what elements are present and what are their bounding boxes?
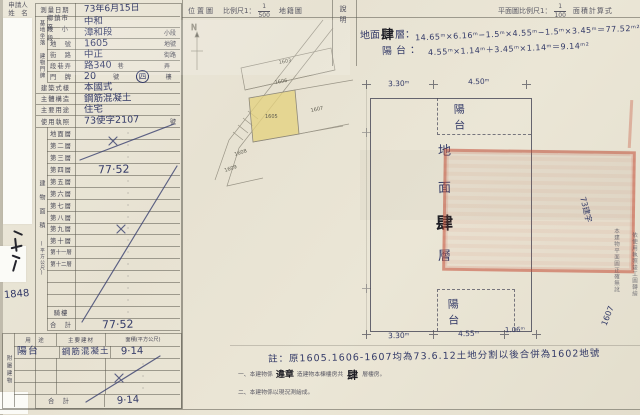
divider — [332, 0, 333, 66]
floor-area-value: 77·52 — [98, 163, 130, 175]
dimension-label: 3.30ᵐ — [388, 80, 410, 88]
floor-plan-header: 平面圖比例尺1： 1 100 面積計算式 — [498, 4, 613, 19]
balcony-bottom: 陽 台 — [437, 289, 515, 331]
dimension-label: 3.30ᵐ — [388, 332, 410, 340]
dimension-tick — [429, 80, 438, 89]
margin-note-column: 依使用執照竣工圖轉繪 — [630, 232, 638, 402]
receipt-number: 1848 — [4, 289, 30, 301]
divider — [230, 345, 640, 346]
dimension-label: 4.55ᵐ — [458, 330, 480, 338]
divider — [182, 0, 183, 409]
parcel-number: 1608 — [234, 148, 248, 158]
dimension-tick — [522, 80, 531, 89]
dimension-tick — [362, 284, 371, 293]
notes-column-label: 說明 — [338, 5, 348, 27]
dimension-tick — [429, 330, 438, 339]
applicant-label-line2: 姓 名 — [2, 10, 34, 18]
dimension-label: 4.50ᵐ — [468, 78, 490, 86]
area-formula-2: 陽台： 4.55ᵐ×1.14ᵐ＋3.45ᵐ×1.14ᵐ＝9.14ᵐ² — [382, 43, 590, 57]
balcony-label: 陽 台 — [437, 293, 514, 328]
divider — [356, 0, 357, 66]
printed-note-2: 二、本建物係以現況測繪成。 — [238, 390, 313, 397]
location-map-title: 位置圖 — [188, 7, 215, 15]
seal-edge-mark — [628, 100, 634, 148]
dimension-tick — [362, 128, 371, 137]
dimension-tick — [362, 80, 371, 89]
balcony-top: 陽 台 — [437, 98, 531, 135]
survey-date-value: 73年6月15日 — [84, 4, 140, 14]
annex-total: 9·14 — [117, 395, 140, 407]
parcel-number: 1605 — [265, 114, 278, 120]
floor-area-total: 77·52 — [102, 318, 134, 330]
parcel-number: 1609 — [224, 164, 238, 174]
dimension-tick — [362, 330, 371, 339]
floor-total-row: 合 計 77·52 — [47, 318, 180, 331]
balcony-label: 陽 台 — [437, 98, 531, 133]
annex-use: 陽台 — [17, 347, 39, 358]
parcel-number: 1607 — [310, 105, 324, 114]
parcel-number: 1606 — [274, 78, 288, 86]
plan-scale-fraction: 1 100 — [554, 4, 565, 19]
annex-total-row: 合 計 9·14 — [14, 394, 180, 407]
subject-parcel-highlight — [249, 90, 299, 142]
annex-area: 9·14 — [121, 347, 144, 358]
parcel-number: 1603 — [278, 58, 292, 66]
dimension-extension-line — [366, 84, 367, 336]
annex-header-row: 用 途 主要建材 面積(平方公尺) — [14, 333, 180, 347]
annex-material: 鋼筋混凝土 — [62, 347, 110, 357]
location-map-header: 位置圖 比例尺1： 1 500 地籍圖 — [188, 4, 303, 19]
scanned-survey-form: 申請人 姓 名 1848 測量日期 73年6月15日 基地坐落 建物門牌 建物面… — [0, 0, 640, 415]
official-seal — [442, 149, 636, 274]
dimension-tick — [532, 330, 541, 339]
north-arrow-icon: N — [191, 23, 197, 32]
applicant-label: 申請人 姓 名 — [2, 2, 34, 18]
printed-note-1: 一、本建物係 違章 造建物本棟樓房共 肆 層樓房。 — [238, 370, 385, 381]
handwritten-remark: 註：原1605.1606-1607均為73.6.12土地分割以後合併為1602地… — [268, 349, 601, 364]
dimension-label: 1.06ᵐ — [505, 327, 525, 335]
map-scale-fraction: 1 500 — [258, 4, 269, 19]
cadastral-sketch: N 1603 1606 1605 1607 1608 1609 — [183, 18, 355, 238]
redaction-box — [3, 18, 32, 224]
divider — [0, 409, 640, 410]
area-formula-1: 地面 肆 層： 14.65ᵐ×6.16ᵐ−1.5ᵐ×4.55ᵐ−1.5ᵐ×3.4… — [360, 25, 640, 43]
